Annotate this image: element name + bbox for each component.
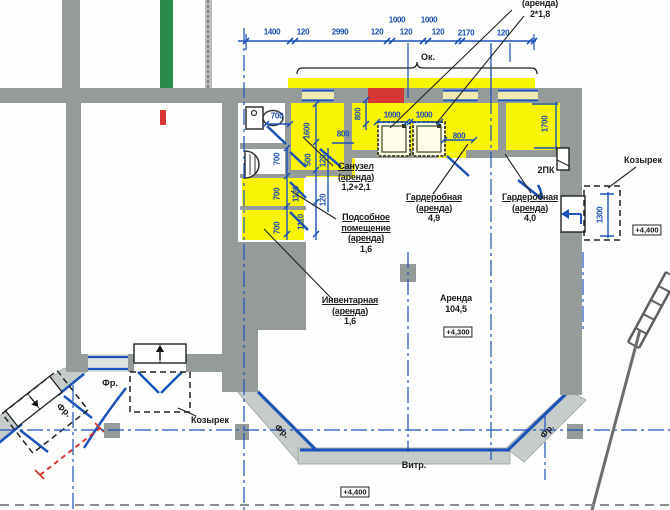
dim-120-4: 120 [432,28,444,37]
window-group-brace [297,62,537,74]
riser-lines [160,0,212,125]
plan-drawing [0,0,670,510]
label-kozyrek-left: Козырек [191,415,229,425]
dim-1300: 1300 [596,207,605,224]
entrance-door [134,344,186,363]
canopy-left [130,372,190,412]
dim-1400: 1400 [264,28,281,37]
dim-1000-1: 1000 [389,16,406,25]
label-rental-2x18: (аренда) 2*1,8 [505,0,575,19]
dim-120-2: 120 [371,28,383,37]
dim-1000-2: 1000 [421,16,438,25]
dim-700-v3: 700 [273,222,282,234]
dim-700-v1: 700 [273,153,282,165]
dim-800-gard: 800 [453,132,465,141]
dim-800-san: 800 [337,130,349,139]
red-riser-mark [160,110,166,125]
stairs-icon [592,272,670,510]
dim-1110: 1110 [297,214,306,230]
dim-1120: 1120 [292,186,301,202]
elevation-right: +4,400 [632,225,661,236]
floor-plan-scan: 1400 120 2990 120 1000 120 1000 120 2170… [0,0,670,510]
label-arenda-main: Аренда 104,5 [426,293,486,314]
label-framuga-1: Фр. [102,378,118,388]
dim-2990: 2990 [332,28,349,37]
label-lintel-2pk: 2ПК [538,165,555,175]
label-inventarnaya: Инвентарная (аренда) 1,6 [306,295,394,327]
dim-1700: 1700 [541,116,550,133]
dim-700-v2: 700 [273,188,282,200]
label-garderobnaya-40: Гардеробная (аренда) 4,0 [492,192,568,224]
dim-120-1: 120 [297,28,309,37]
label-window: Ок. [421,52,435,62]
elevation-bottom: +4,400 [340,487,369,498]
green-riser [160,0,173,88]
sink-icon [245,151,259,178]
dim-2170: 2170 [458,29,475,38]
label-vitrina: Витр. [402,460,426,470]
dim-800-v: 800 [354,108,363,120]
dim-1000-w1: 1000 [384,111,401,120]
dim-500: 500 [304,154,313,166]
label-garderobnaya-49: Гардеробная (аренда) 4,9 [396,192,472,224]
dim-120-3: 120 [400,28,412,37]
label-sanuzel: Санузел (аренда) 1,2+2,1 [324,161,388,193]
dim-1600: 1600 [303,123,312,140]
dim-120-v2: 120 [319,194,328,206]
label-kozyrek-right: Козырек [624,155,662,165]
dim-700-door: 700 [271,112,283,121]
lintel-symbol [557,148,569,170]
dim-120-5: 120 [497,29,509,38]
diagonal-entrance-door [6,376,62,426]
dim-1000-w2: 1000 [416,111,433,120]
label-podsobnoe: Подсобное помещение (аренда) 1,6 [330,212,402,254]
elevation-main: +4,300 [443,327,472,338]
red-opening-mark [368,88,404,103]
